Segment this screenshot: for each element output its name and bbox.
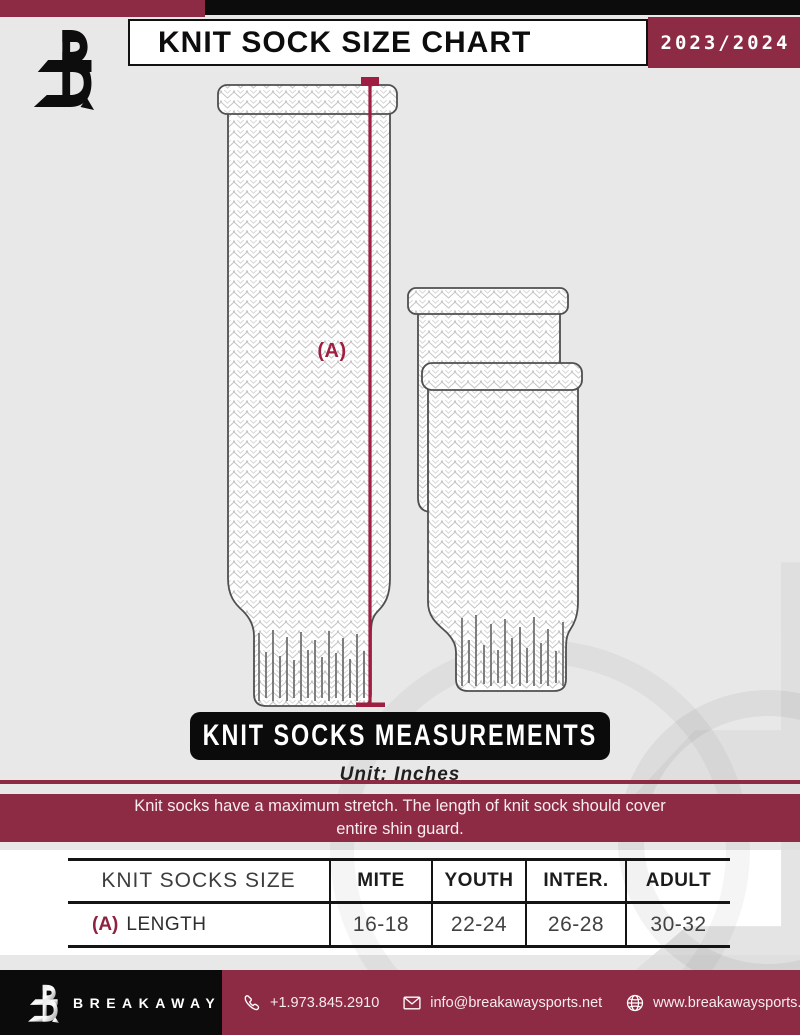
sock-diagram xyxy=(0,0,800,715)
table-cell-length-youth: 22-24 xyxy=(431,904,525,945)
phone-icon xyxy=(242,993,262,1013)
table-header-adult: ADULT xyxy=(625,861,730,904)
table-header-youth: YOUTH xyxy=(431,861,525,904)
brand-name: BREAKAWAY xyxy=(73,995,221,1011)
knit-sock-size-chart-page: KNIT SOCK SIZE CHART 2023/2024 xyxy=(0,0,800,1035)
table-header-mite: MITE xyxy=(329,861,431,904)
table-cell-length-adult: 30-32 xyxy=(625,904,730,945)
footer-contacts: +1.973.845.2910 info@breakawaysports.net… xyxy=(222,970,800,1035)
notice-line-2: entire shin guard. xyxy=(336,819,464,840)
footer: BREAKAWAY +1.973.845.2910 info@breakaway… xyxy=(0,970,800,1035)
globe-icon xyxy=(625,993,645,1013)
measurements-banner: KNIT SOCKS MEASUREMENTS xyxy=(190,712,610,760)
maroon-divider-line xyxy=(0,780,800,784)
size-table: KNIT SOCKS SIZE MITE YOUTH INTER. ADULT … xyxy=(68,858,730,948)
website-url: www.breakawaysports.net xyxy=(653,995,800,1011)
table-cell-length-inter: 26-28 xyxy=(525,904,625,945)
phone-number: +1.973.845.2910 xyxy=(270,995,379,1011)
contact-phone: +1.973.845.2910 xyxy=(242,993,379,1013)
stretch-notice-banner: Knit socks have a maximum stretch. The l… xyxy=(0,794,800,842)
email-icon xyxy=(402,993,422,1013)
measurement-label-a: (A) xyxy=(311,340,353,363)
table-row-length-label: (A) LENGTH xyxy=(68,904,329,945)
length-marker-a: (A) xyxy=(92,914,118,936)
contact-website: www.breakawaysports.net xyxy=(625,993,800,1013)
footer-brand-panel: BREAKAWAY xyxy=(0,970,222,1035)
footer-breakaway-logo xyxy=(26,983,60,1023)
measurements-banner-title: KNIT SOCKS MEASUREMENTS xyxy=(203,719,598,753)
notice-line-1: Knit socks have a maximum stretch. The l… xyxy=(134,796,666,817)
table-header-inter: INTER. xyxy=(525,861,625,904)
table-cell-length-mite: 16-18 xyxy=(329,904,431,945)
length-label: LENGTH xyxy=(126,914,206,936)
front-sock-illustration xyxy=(422,363,582,691)
email-address: info@breakawaysports.net xyxy=(430,995,602,1011)
table-header-row-label: KNIT SOCKS SIZE xyxy=(68,861,329,904)
contact-email: info@breakawaysports.net xyxy=(402,993,602,1013)
